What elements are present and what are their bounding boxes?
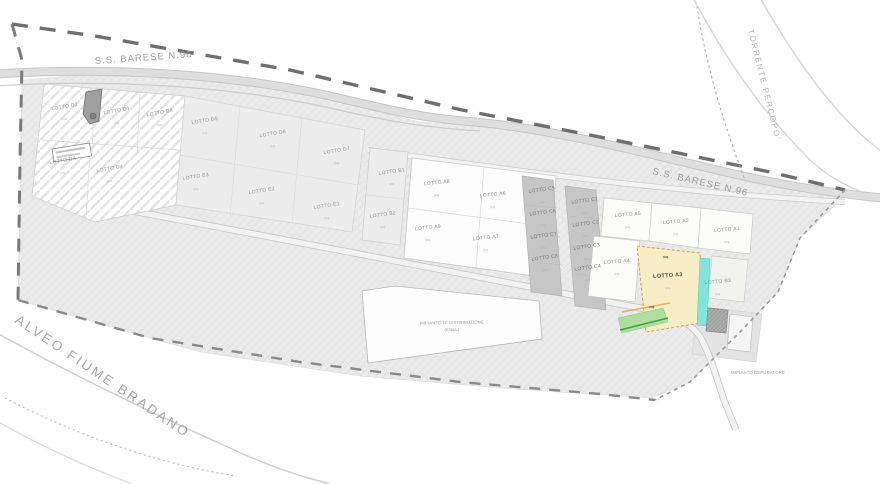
depuratore-building: [706, 308, 728, 333]
lot-area-label: mq.: [541, 246, 547, 251]
lot-a3-area-bottom: mq.: [649, 305, 656, 309]
torrente-line-dotted: [697, 6, 745, 180]
lot-area-label: mq.: [540, 223, 546, 228]
lot-area-label: mq.: [425, 238, 431, 243]
lot-area-label: mq.: [583, 234, 589, 239]
lot-area-label: mq.: [582, 211, 588, 216]
lot-area-label: mq.: [539, 200, 545, 205]
distribution-plant-label-line2: (ENEL): [444, 327, 459, 332]
lot-area-label: mq.: [715, 292, 721, 296]
lot-area-label: mq.: [380, 225, 386, 230]
lot-area-label: mq.: [389, 182, 395, 187]
lot-area-label: mq.: [434, 193, 440, 198]
site-plan-page: S.S. BARESE N.96 S.S. BARESE N.96 TORREN…: [0, 0, 880, 484]
river-line-dotted: [5, 398, 235, 476]
lot-a2: [649, 203, 701, 248]
lot-area-label: mq.: [724, 240, 730, 244]
torrente-percopo-label: TORRENTE PERCOPO': [746, 28, 783, 142]
lot-area-label: mq.: [614, 272, 620, 276]
lot-area-label: mq.: [483, 248, 489, 253]
torrente-line-lower: [690, 0, 862, 192]
lot-area-label: mq.: [665, 286, 671, 290]
lot-a5: [601, 198, 652, 241]
depuratore-label: IMPIANTO DEPURATORE: [731, 370, 785, 375]
lot-area-label: mq.: [584, 257, 590, 262]
lot-block-b: [362, 148, 408, 245]
utility-cabin-tank: [90, 113, 96, 119]
lot-area-label: mq.: [490, 205, 496, 210]
lot-area-label: mq.: [542, 268, 548, 273]
river-line-2: [0, 420, 132, 484]
ss-barese-label-left: S.S. BARESE N.96: [94, 49, 192, 67]
lot-area-label: mq.: [673, 232, 679, 236]
lot-a3-area-top: mq.: [663, 255, 670, 259]
lottization-plan-map: S.S. BARESE N.96 S.S. BARESE N.96 TORREN…: [0, 0, 880, 484]
lot-area-label: mq.: [625, 225, 631, 229]
lot-area-label: mq.: [585, 278, 591, 283]
